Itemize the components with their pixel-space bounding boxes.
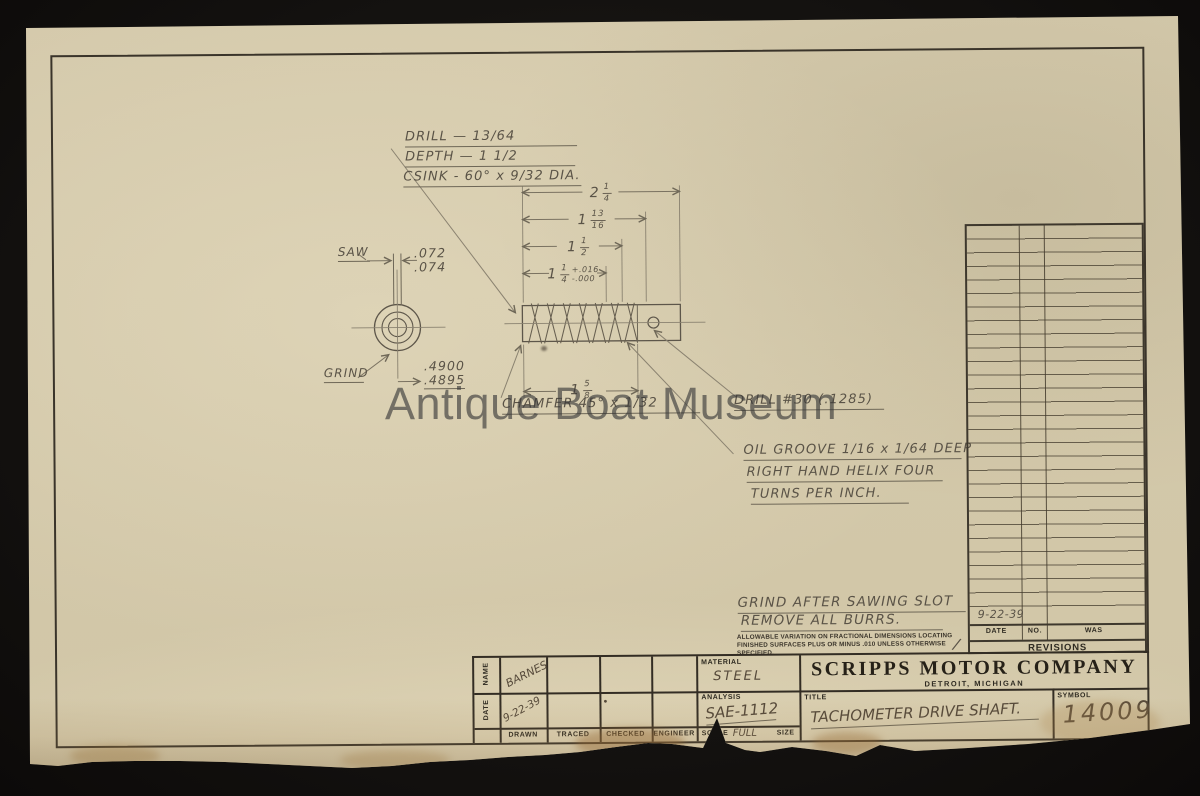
dimension-fourth: 1 14 +.016-.000: [547, 264, 599, 285]
grind-label: GRIND: [324, 366, 364, 383]
oil-groove-note-line3: TURNS PER INCH.: [751, 486, 909, 505]
saw-label: SAW: [338, 245, 370, 262]
dimension-third: 1 12: [567, 237, 589, 258]
revisions-col-date-label: DATE: [986, 628, 1007, 635]
oil-groove-note-line2: RIGHT HAND HELIX FOUR: [747, 463, 943, 483]
pencil-smudge: [541, 346, 547, 351]
revisions-col-no-label: NO.: [1028, 628, 1042, 635]
bottom-edge-shading: [24, 698, 1190, 768]
saw-dimension: .072.074: [414, 246, 446, 273]
dimension-overall: 2 14: [590, 183, 612, 204]
material-label: MATERIAL: [701, 659, 742, 666]
grind-after-note-line2: REMOVE ALL BURRS.: [741, 611, 943, 632]
revisions-col-was-label: WAS: [1085, 627, 1103, 634]
material-value: STEEL: [713, 669, 763, 684]
drill-note-line1: DRILL — 13/64: [405, 128, 577, 147]
drill-note-line2: DEPTH — 1 1/2: [405, 148, 575, 167]
oil-groove-note-line1: OIL GROOVE 1/16 x 1/64 DEEP: [743, 441, 961, 461]
drawn-name-value: BARNES: [504, 658, 550, 690]
revisions-empty-rows: [967, 225, 1145, 607]
revisions-header-divider: [970, 623, 1145, 626]
revision-entry-date: 9-22-39: [978, 608, 1025, 621]
museum-watermark: Antique Boat Museum: [385, 378, 837, 430]
paper-sheet: DRILL — 13/64 DEPTH — 1 1/2 CSINK - 60° …: [20, 8, 1192, 774]
csink-note: CSINK - 60° x 9/32 DIA.: [403, 168, 581, 187]
name-row-label: NAME: [483, 665, 490, 685]
scanned-drawing-sheet: DRILL — 13/64 DEPTH — 1 1/2 CSINK - 60° …: [0, 0, 1200, 796]
revisions-table: 9-22-39 DATE NO. WAS REVISIONS: [965, 223, 1147, 654]
saw-grind-arrows: [357, 253, 420, 381]
dimension-second: 1 1316: [578, 210, 606, 231]
shaft-centerline: [504, 322, 705, 324]
